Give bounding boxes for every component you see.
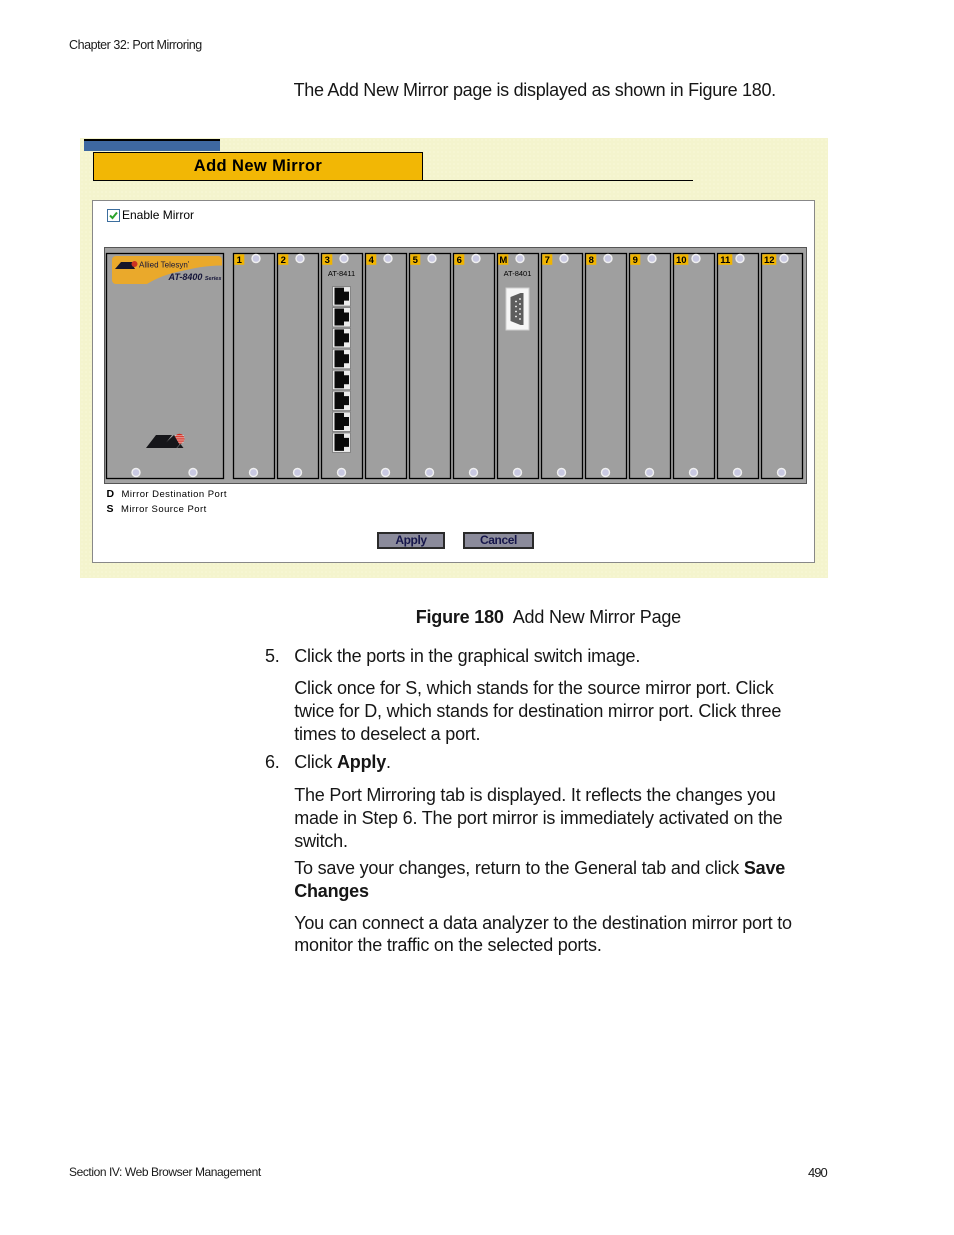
svg-text:12: 12	[764, 255, 775, 266]
svg-text:3: 3	[325, 255, 330, 266]
svg-text:AT-8401: AT-8401	[504, 269, 532, 278]
svg-text:AT-8411: AT-8411	[328, 269, 355, 278]
svg-text:6: 6	[457, 255, 462, 266]
svg-text:8: 8	[589, 255, 594, 266]
svg-text:M: M	[499, 255, 507, 266]
svg-text:4: 4	[369, 255, 375, 266]
svg-text:1: 1	[237, 255, 243, 266]
svg-text:9: 9	[633, 255, 638, 266]
svg-text:10: 10	[676, 255, 687, 266]
svg-text:7: 7	[545, 255, 550, 266]
svg-text:2: 2	[281, 255, 286, 266]
svg-text:5: 5	[413, 255, 419, 266]
svg-text:11: 11	[720, 255, 731, 266]
svg-text:Allied Telesynʼ: Allied Telesynʼ	[139, 261, 190, 270]
